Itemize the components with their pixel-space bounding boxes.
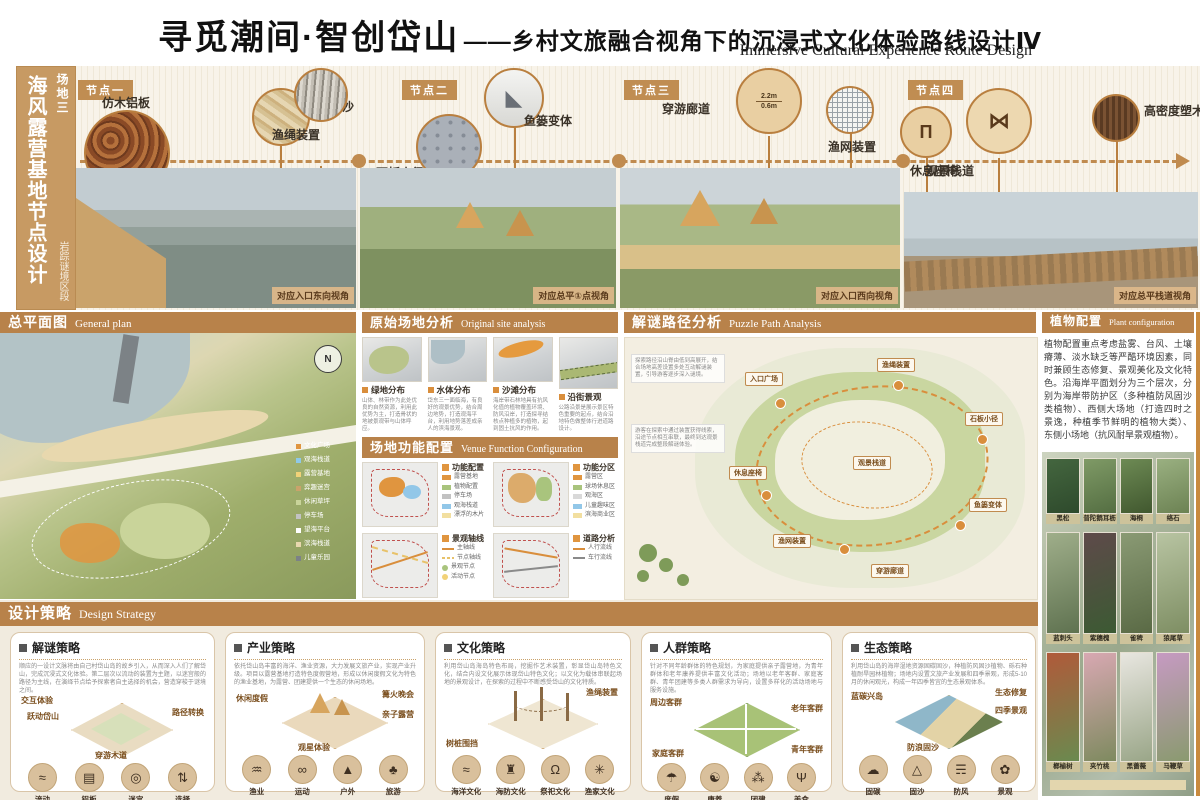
section-title-en: Puzzle Path Analysis <box>729 318 821 330</box>
general-plan-map: N 文化广场 观海栈道 露营基地 弈趣迷宫 休闲草坪 停车场 望海平台 滨海栈道… <box>0 333 356 599</box>
section-title-en: Plant configuration <box>1109 317 1174 327</box>
material-label: 渔绳装置 <box>272 126 320 143</box>
ritual-culture-icon: Ω <box>541 755 570 784</box>
travel-icon: ♣ <box>379 755 408 784</box>
boardwalk-bridge-icon: ⋈ <box>966 88 1032 154</box>
timeline-dot <box>896 154 910 168</box>
node3-tag: 节点三 <box>624 80 679 100</box>
render-wall-shape <box>76 198 166 308</box>
net-curve-shape <box>514 695 569 712</box>
perspective-render-2: 对应总平①点视角 <box>360 168 616 308</box>
puzzle-label-chip: 入口广场 <box>745 372 783 386</box>
plants-header: 植物配置 Plant configuration <box>1042 312 1194 333</box>
site-analysis-maps: 绿地分布 山体、林带作为此处优良的自然资源，利用此优势为主，打造骨状的地被景观带… <box>362 337 618 433</box>
card-title: 生态策略 <box>864 639 912 656</box>
card-icons: ☁固碳 △固沙 ☴防风 ✿景观 <box>851 755 1027 797</box>
node2-tag: 节点二 <box>402 80 457 100</box>
card-text: 利用岱山岛海岛特色布局，挖掘作艺术装置，彰显岱山岛特色文化，结合内设文化展示体现… <box>444 663 622 687</box>
render-caption: 对应入口西向视角 <box>816 287 898 304</box>
sidebar-section-label: 岩踪谜境区段 <box>55 241 70 301</box>
legend-item: 望海平台 <box>296 525 330 535</box>
venue-config-grid: 功能配置 露营基地 植物配置 停车场 观海栈道 漂浮的木片 功能分区 露营区 球… <box>362 462 618 598</box>
strategy-card-culture: 文化策略 利用岱山岛海岛特色布局，挖掘作艺术装置，彰显岱山岛特色文化，结合内设文… <box>435 632 631 792</box>
legend-item: 休闲草坪 <box>296 497 330 507</box>
flow-icon: ≈ <box>28 763 57 792</box>
plant-name: 黑松 <box>1046 514 1080 524</box>
route-node-dot <box>839 544 850 555</box>
timeline-arrow-icon <box>1176 153 1190 169</box>
bullet-square-icon <box>650 644 658 652</box>
card-diagram: 交互体验 跃动岱山 路径转换 穿游木道 <box>19 695 206 761</box>
render-caption: 对应总平栈道视角 <box>1114 287 1196 304</box>
material-fish-net-photo <box>826 86 874 134</box>
card-title: 产业策略 <box>247 639 295 656</box>
boardwalk-deck-shape <box>904 246 1198 291</box>
puzzle-annotation: 游客在探索中通过装置获得线索，沿途节点相互串联，最终到达观景栈道完成整段解谜体验… <box>631 424 725 453</box>
general-plan-header: 总平面图 General plan <box>0 312 356 333</box>
plant-row-2: 蓝刺头 紫穗槐 雀稗 狼尾草 <box>1046 532 1190 644</box>
section-title-en: Original site analysis <box>461 319 545 330</box>
card-title: 人群策略 <box>663 639 711 656</box>
tent-shape <box>334 699 350 715</box>
tent-shape <box>506 210 534 236</box>
wellness-icon: ☯ <box>700 763 729 792</box>
tree-shape <box>659 558 673 572</box>
card-diagram: 渔绳装置 树桩围挡 <box>444 687 622 753</box>
plants-paragraph: 植物配置重点考虑盐雾、台风、土壤瘠薄、淡水缺乏等严酷环境因素，同时兼顾生态修复、… <box>1044 338 1192 450</box>
card-diagram: 休闲度假 篝火晚会 亲子露营 观星体验 <box>234 687 416 753</box>
strategy-header: 设计策略 Design Strategy <box>0 602 1038 626</box>
plant-name: 夹竹桃 <box>1083 762 1117 772</box>
venue-quadrant: 功能分区 露营区 球场休息区 观海区 儿童趣味区 滨海商业区 <box>493 462 618 527</box>
strategy-card-users: 人群策略 针对不同年龄群体的特色规划，为家庭提供亲子露营地，为青年群体和老年康养… <box>641 632 832 792</box>
legend-item: 露营基地 <box>296 469 330 479</box>
plant-row-1: 黑松 普陀鹅耳枥 海桐 络石 <box>1046 458 1190 524</box>
puzzle-label-chip: 休息座椅 <box>729 466 767 480</box>
render-caption: 对应总平①点视角 <box>533 287 614 304</box>
plant-name: 马鞭草 <box>1156 762 1190 772</box>
section-title: 场地功能配置 <box>370 437 454 456</box>
card-icons: ≈流动 ▤铝板 ◎迷宫 ⇅选择 <box>19 763 206 800</box>
card-text: 针对不同年龄群体的特色规划，为家庭提供亲子露营地，为青年群体和老年康养提供丰富文… <box>650 663 823 695</box>
bullet-square-icon <box>444 644 452 652</box>
tree-shape <box>677 574 689 586</box>
tent-shape <box>456 202 484 228</box>
plant-name: 紫穗槐 <box>1083 634 1117 644</box>
card-icons: ♒渔业 ∞运动 ▲户外 ♣旅游 <box>234 755 416 797</box>
plant-name: 黑蔷薇 <box>1120 762 1154 772</box>
card-title-row: 人群策略 <box>650 639 823 656</box>
design-poster: 寻觅潮间·智创岱山 ——乡村文旅融合视角下的沉浸式文化体验路线设计Ⅳ Immer… <box>0 0 1200 800</box>
analysis-cell: 沿街景观 公路沿景是展示景区特色重要的起点，结合沿地特色做整体行进道路设计。 <box>559 337 619 433</box>
material-fish-rope-photo <box>294 68 348 122</box>
legend-item: 停车场 <box>296 511 330 521</box>
material-label: 渔网装置 <box>828 138 876 155</box>
puzzle-annotation: 探索路径沿山脊由低到高展开，结合场地高差设置多处互动解谜装置，引导游客逐步深入谜… <box>631 354 725 383</box>
legend-item: 文化广场 <box>296 441 330 451</box>
sand-fixation-icon: △ <box>903 755 932 784</box>
sidebar-title: 海风露营基地节点设计 <box>21 75 50 303</box>
venue-config-header: 场地功能配置 Venue Function Configuration <box>362 437 618 458</box>
fisher-culture-icon: ✳ <box>585 755 614 784</box>
platform-shape <box>694 703 800 757</box>
map-lawn-shape <box>120 503 210 559</box>
venue-quadrant: 道路分析 人行流线 车行流线 <box>493 533 618 598</box>
platform-shape <box>895 695 1003 749</box>
dimension-label: 2.2m <box>761 92 777 101</box>
card-title-row: 解谜策略 <box>19 639 206 656</box>
route-node-dot <box>893 380 904 391</box>
bullet-square-icon <box>234 644 242 652</box>
plant-name: 榔榆树 <box>1046 762 1080 772</box>
bullet-square-icon <box>19 644 27 652</box>
analysis-cell: 绿地分布 山体、林带作为此处优良的自然资源，利用此优势为主，打造骨状的地被景观带… <box>362 337 422 433</box>
strategy-card-puzzle: 解谜策略 顺应的一设计文脉将由自己村岱山岛的故乡引入，从而深入人们了解岱山，完成… <box>10 632 215 792</box>
team-building-icon: ⁂ <box>744 763 773 792</box>
card-title-row: 生态策略 <box>851 639 1027 656</box>
plant-name: 络石 <box>1156 514 1190 524</box>
plants-footer-strip <box>1050 780 1186 790</box>
windbreak-icon: ☴ <box>947 755 976 784</box>
puzzle-label-chip: 鱼篓变体 <box>969 498 1007 512</box>
section-title-en: Design Strategy <box>79 607 156 622</box>
material-label: 高密度塑木 <box>1144 102 1200 119</box>
venue-quadrant: 景观轴线 主轴线 节点轴线 景观节点 活动节点 <box>362 533 487 598</box>
render-caption: 对应入口东向视角 <box>272 287 354 304</box>
tree-shape <box>637 570 649 582</box>
section-title: 设计策略 <box>8 602 72 623</box>
page-subtitle-en: Immersive Cultural Experience Route Desi… <box>740 42 1032 60</box>
card-diagram: 蓝碳兴岛 生态修复 四季景观 防浪固沙 <box>851 687 1027 753</box>
card-title-row: 产业策略 <box>234 639 416 656</box>
food-icon: Ψ <box>787 763 816 792</box>
card-text: 依托岱山岛丰富的海洋、渔业资源，大力发展文旅产业，实现产业升级。项目以露营基地打… <box>234 663 416 687</box>
perspective-render-3: 对应入口西向视角 <box>620 168 900 308</box>
node-band: 节点一 仿木铝板 铁板沙 渔绳装置 节点二 石板小径 ◣ 鱼篓变体 节点三 2.… <box>76 66 1200 310</box>
rest-bench-icon: Π <box>900 106 952 158</box>
tent-shape <box>750 198 778 224</box>
route-node-dot <box>761 490 772 501</box>
ocean-culture-icon: ≈ <box>452 755 481 784</box>
coastal-defense-icon: ♜ <box>496 755 525 784</box>
general-plan-legend: 文化广场 观海栈道 露营基地 弈趣迷宫 休闲草坪 停车场 望海平台 滨海栈道 儿… <box>296 441 330 563</box>
plant-row-3: 榔榆树 夹竹桃 黑蔷薇 马鞭草 <box>1046 652 1190 772</box>
perspective-render-1: 对应入口东向视角 <box>76 168 356 308</box>
legend-item: 观海栈道 <box>296 455 330 465</box>
section-title: 植物配置 <box>1050 312 1102 329</box>
puzzle-path-header: 解谜路径分析 Puzzle Path Analysis <box>624 312 1036 333</box>
section-title: 总平面图 <box>8 312 68 332</box>
scenery-flower-icon: ✿ <box>991 755 1020 784</box>
route-node-dot <box>977 434 988 445</box>
section-title-en: Venue Function Configuration <box>461 444 583 455</box>
card-title: 文化策略 <box>457 639 505 656</box>
timeline-dot <box>612 154 626 168</box>
fishery-icon: ♒ <box>242 755 271 784</box>
puzzle-label-chip: 渔绳装置 <box>877 358 915 372</box>
card-icons: ☂度假 ☯康养 ⁂团建 Ψ美食 <box>650 763 823 800</box>
site-analysis-header: 原始场地分析 Original site analysis <box>362 312 618 333</box>
analysis-cell: 沙滩分布 海岸带石林地具有抗风化值的植物覆盖环境、防风沿岸，打造探寻结核点种植多… <box>493 337 553 433</box>
material-plastic-wood-photo <box>1092 94 1140 142</box>
card-text: 顺应的一设计文脉将由自己村岱山岛的故乡引入，从而深入人们了解岱山，完成沉浸式文化… <box>19 663 206 695</box>
plant-name: 普陀鹅耳枥 <box>1083 514 1117 524</box>
tent-shape <box>680 190 720 226</box>
plant-name: 狼尾草 <box>1156 634 1190 644</box>
carbon-fixation-icon: ☁ <box>859 755 888 784</box>
north-label: N <box>324 354 331 365</box>
strategy-card-ecology: 生态策略 利用岱山岛的海岸湿地资源固碳固沙，种植防风固沙植物、砾石种植耐旱园林植… <box>842 632 1036 792</box>
sidebar: 场地三 海风露营基地节点设计 岩踪谜境区段 <box>16 66 76 310</box>
tent-shape <box>310 693 330 713</box>
plant-name: 雀稗 <box>1120 634 1154 644</box>
puzzle-label-chip: 石板小径 <box>965 412 1003 426</box>
sports-icon: ∞ <box>288 755 317 784</box>
maze-icon: ◎ <box>121 763 150 792</box>
card-title: 解谜策略 <box>32 639 80 656</box>
timeline-dot <box>352 154 366 168</box>
material-label: 仿木铝板 <box>102 94 150 111</box>
route-node-dot <box>775 398 786 409</box>
quadrant-line <box>745 704 747 754</box>
plants-collage: 黑松 普陀鹅耳枥 海桐 络石 蓝刺头 紫穗槐 雀稗 狼尾草 榔榆树 夹竹桃 黑蔷… <box>1042 452 1194 796</box>
sidebar-site-label: 场地三 <box>54 73 71 115</box>
card-text: 利用岱山岛的海岸湿地资源固碳固沙，种植防风固沙植物、砾石种植耐旱园林植物；场地内… <box>851 663 1027 687</box>
perspective-render-4: 对应总平栈道视角 <box>904 192 1198 308</box>
header: 寻觅潮间·智创岱山 ——乡村文旅融合视角下的沉浸式文化体验路线设计Ⅳ Immer… <box>0 0 1200 64</box>
bullet-square-icon <box>851 644 859 652</box>
material-corridor-photo: 2.2m 0.6m <box>736 68 802 134</box>
aluminum-panel-icon: ▤ <box>75 763 104 792</box>
north-compass: N <box>314 345 342 373</box>
tree-shape <box>639 544 657 562</box>
venue-quadrant: 功能配置 露营基地 植物配置 停车场 观海栈道 漂浮的木片 <box>362 462 487 527</box>
plant-name: 海桐 <box>1120 514 1154 524</box>
puzzle-path-map: 入口广场 渔绳装置 石板小径 鱼篓变体 穿游廊道 渔网装置 休息座椅 观景栈道 … <box>624 337 1038 600</box>
right-edge-strip <box>1196 312 1200 796</box>
card-diagram: 周边客群 老年客群 家庭客群 青年客群 <box>650 695 823 761</box>
vacation-umbrella-icon: ☂ <box>657 763 686 792</box>
strategy-card-industry: 产业策略 依托岱山岛丰富的海洋、渔业资源，大力发展文旅产业，实现产业升级。项目以… <box>225 632 425 792</box>
map-camp-shape <box>60 523 120 563</box>
puzzle-label-chip: 观景栈道 <box>853 456 891 470</box>
route-timeline <box>80 160 1178 163</box>
legend-item: 弈趣迷宫 <box>296 483 330 493</box>
route-node-dot <box>955 520 966 531</box>
legend-item: 儿童乐园 <box>296 553 330 563</box>
section-title-en: General plan <box>75 318 132 330</box>
node4-tag: 节点四 <box>908 80 963 100</box>
legend-item: 滨海栈道 <box>296 539 330 549</box>
card-icons: ≈海洋文化 ♜海防文化 Ω祭祀文化 ✳渔家文化 <box>444 755 622 797</box>
material-label: 穿游廊道 <box>662 100 710 117</box>
dimension-label: 0.6m <box>761 102 777 111</box>
material-label: 鱼篓变体 <box>524 112 572 129</box>
outdoor-tent-icon: ▲ <box>333 755 362 784</box>
puzzle-label-chip: 渔网装置 <box>773 534 811 548</box>
section-title: 解谜路径分析 <box>632 312 722 332</box>
plant-name: 蓝刺头 <box>1046 634 1080 644</box>
choice-icon: ⇅ <box>168 763 197 792</box>
section-title: 原始场地分析 <box>370 312 454 331</box>
analysis-cell: 水体分布 岱东三一面临海，有良好的观景优势，结合周边地势，打造观海平台，利用地势… <box>428 337 488 433</box>
puzzle-label-chip: 穿游廊道 <box>871 564 909 578</box>
material-label: 观景栈道 <box>926 162 974 179</box>
card-title-row: 文化策略 <box>444 639 622 656</box>
page-title: 寻觅潮间·智创岱山 <box>158 19 459 57</box>
